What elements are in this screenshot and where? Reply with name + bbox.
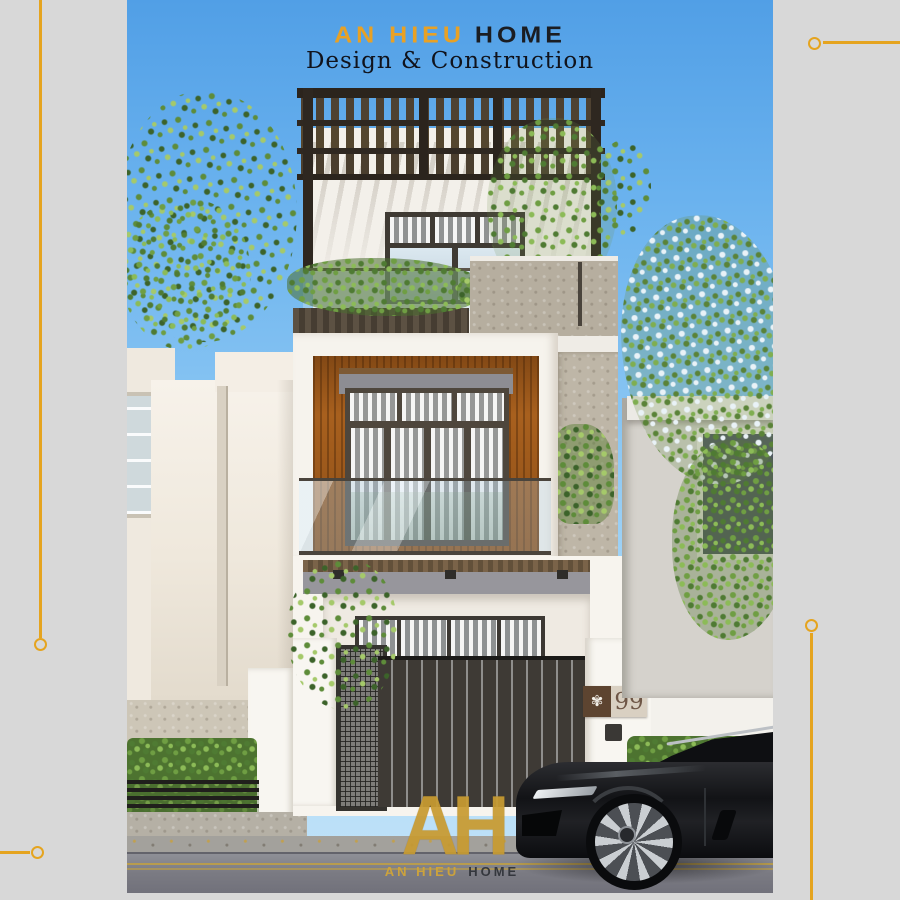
accent-ring-bottom-left [31,846,44,859]
third-floor-transom-pane [390,217,430,243]
right-tree-lower [672,440,773,640]
accent-ring-top-right [808,37,821,50]
brand-name-primary: AN HIEU [334,22,465,48]
accent-line-top-right [823,41,900,44]
brand-name-secondary: HOME [475,22,566,48]
car-wheel-hub [618,826,636,844]
wall-lamp [445,570,456,579]
car-door-line [704,788,706,846]
transom-pane [402,393,452,421]
watermark-monogram: AH [382,790,522,861]
left-building-fin-shadow [217,386,228,686]
pergola-top-beam [297,88,605,98]
parapet-slot [578,262,582,326]
entry-pane [451,620,497,660]
pergola-left-post [303,88,313,270]
lotus-emblem-icon: ✾ [591,694,604,709]
glass-balustrade [299,478,551,555]
accent-ring-left [34,638,47,651]
architecture-render-photo: ✾ 99 AH AN HIEUHOME [127,0,773,893]
watermark: AH AN HIEUHOME [382,792,522,879]
front-yard-tree [287,560,397,710]
accent-ring-right [805,619,818,632]
slat-fence-left [127,780,259,816]
header: AN HIEUHOME Design & Construction [127,22,773,73]
pergola-mid-post [419,88,428,180]
plaque-emblem-tile: ✾ [583,686,611,717]
brand-tagline: Design & Construction [127,49,773,73]
brand-title: AN HIEUHOME [127,23,773,47]
accent-line-right-vertical [810,633,813,900]
transom-pane [457,393,504,421]
car-wheel [586,794,682,890]
car [516,726,773,888]
pergola-slat-band [301,98,601,120]
entry-pane [501,620,541,660]
third-floor-transom-pane [435,217,475,243]
accent-line-left-vertical [39,0,42,638]
tower-white-band [556,336,618,352]
accent-line-bottom-left [0,851,30,854]
small-tree-gap [595,140,651,236]
entry-pane [401,620,447,660]
wall-lamp [557,570,568,579]
transom-pane [350,393,397,421]
